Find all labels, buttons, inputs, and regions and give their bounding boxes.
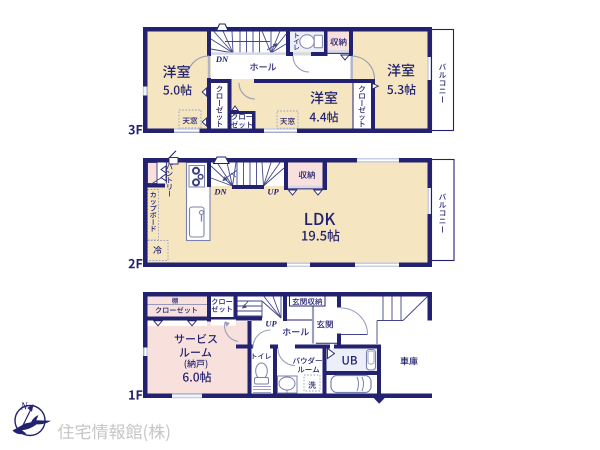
svg-text:DN: DN xyxy=(213,187,227,197)
svg-text:DN: DN xyxy=(215,54,229,64)
svg-text:UP: UP xyxy=(265,319,277,329)
svg-text:N: N xyxy=(19,402,28,413)
svg-text:UP: UP xyxy=(267,187,279,197)
